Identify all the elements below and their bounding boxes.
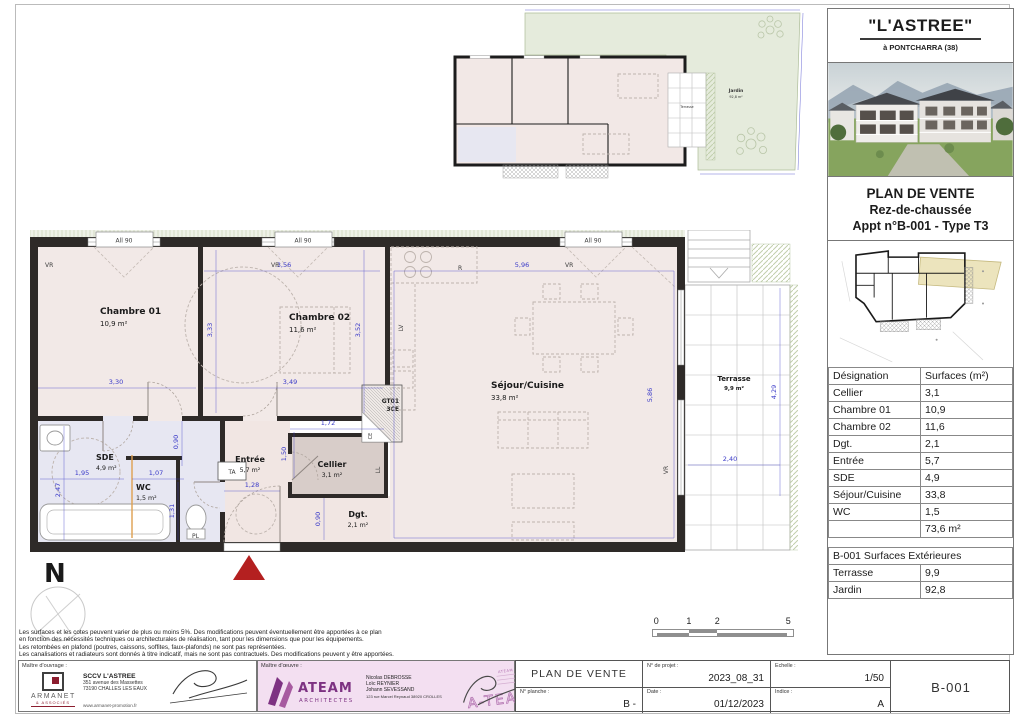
scale-value: 1/50 — [865, 673, 884, 684]
room-area: 5,7 m² — [240, 467, 261, 474]
dimension-label: 2,40 — [723, 455, 737, 463]
overview-terrasse-label: Terrasse — [679, 105, 693, 109]
cell-surface: 3,1 — [921, 385, 1013, 402]
client-company: SCCV L'ASTREE — [83, 673, 173, 680]
disclaimer-line: Les retombées en plafond (poutres, caiss… — [19, 644, 819, 651]
client-label: Maître d'ouvrage : — [22, 663, 67, 669]
footer-plan-title: PLAN DE VENTE — [516, 668, 642, 680]
cell-designation: Chambre 02 — [829, 419, 921, 436]
armanet-logo-subtext: & ASSOCIÉS — [31, 700, 75, 707]
project-number-value: 2023_08_31 — [708, 673, 764, 684]
scale-tick: 2 — [715, 616, 720, 626]
room-name: WC — [136, 483, 151, 492]
plan-floor: Rez-de-chaussée — [828, 203, 1013, 217]
date-cell: Date : 01/12/2023 — [643, 687, 770, 713]
cell-designation: Cellier — [829, 385, 921, 402]
shutter-label: VR — [45, 262, 53, 269]
table-row: Entrée5,7 — [829, 453, 1013, 470]
dimension-label: 1,31 — [168, 504, 176, 518]
exterior-table-title: B-001 Surfaces Extérieures — [829, 548, 1013, 565]
overview-plan: Terrasse Jardin 92,8 m² — [448, 4, 820, 180]
table-row: WC1,5 — [829, 504, 1013, 521]
dimension-label: 1,50 — [280, 447, 288, 461]
dimension-label: 0,90 — [172, 435, 180, 449]
plan-title-cell: PLAN DE VENTE — [516, 661, 642, 687]
col-surface: Surfaces (m²) — [921, 368, 1013, 385]
room-name: Entrée — [235, 454, 265, 464]
table-row: Cellier3,1 — [829, 385, 1013, 402]
svg-text:ARCHITECTES: ARCHITECTES — [299, 698, 354, 704]
architect-box: Maître d'œuvre : ATEAM ARCHITECTES Nicol… — [257, 660, 515, 712]
overview-jardin-area: 92,8 m² — [729, 95, 743, 99]
shutter-label: VR — [565, 262, 573, 269]
sheet-value: B - — [623, 699, 636, 710]
cell-designation: Entrée — [829, 453, 921, 470]
armanet-logo-text: ARMANET — [31, 693, 75, 700]
overview-jardin-label: Jardin — [728, 88, 744, 94]
total-surface: 73,6 m² — [921, 521, 1013, 538]
table-row: Chambre 0211,6 — [829, 419, 1013, 436]
cell-empty — [829, 521, 921, 538]
table-row: Terrasse9,9 — [829, 565, 1013, 582]
room-area: 2,1 m² — [348, 522, 369, 529]
info-panel: "L'ASTREE" à PONTCHARRA (38) — [827, 8, 1014, 655]
index-label: Indice : — [775, 689, 792, 695]
surfaces-table: Désignation Surfaces (m²) Cellier3,1 Cha… — [828, 367, 1013, 538]
date-value: 01/12/2023 — [714, 699, 764, 710]
client-address-2: 73190 CHALLES LES EAUX — [83, 686, 173, 692]
terrasse-area — [685, 285, 798, 550]
col-designation: Désignation — [829, 368, 921, 385]
cell-designation: Dgt. — [829, 436, 921, 453]
duct-label-2: 3CE — [386, 406, 399, 413]
entrance-marker-icon — [233, 555, 265, 580]
table-header-row: Désignation Surfaces (m²) — [829, 368, 1013, 385]
architect-label: Maître d'œuvre : — [261, 663, 302, 669]
table-total-row: 73,6 m² — [829, 521, 1013, 538]
north-label: N — [44, 559, 66, 589]
dimension-label: 5,86 — [646, 388, 654, 402]
cell-designation: Séjour/Cuisine — [829, 487, 921, 504]
locator-map — [828, 241, 1013, 367]
room-name: Chambre 01 — [100, 307, 161, 317]
closet-label: PL — [192, 533, 200, 540]
scale-tick: 1 — [686, 616, 691, 626]
fridge-label: R — [458, 265, 462, 272]
cell-surface: 9,9 — [921, 565, 1013, 582]
architect-identity: Nicolas DEBROSSE Loïc REYNIER Johann SEV… — [366, 675, 456, 700]
panel-label: TA — [227, 469, 236, 476]
exterior-surfaces-table: B-001 Surfaces Extérieures Terrasse9,9 J… — [828, 547, 1013, 599]
cell-surface: 10,9 — [921, 402, 1013, 419]
room-area: 33,8 m² — [491, 394, 519, 402]
room-area: 4,9 m² — [96, 465, 117, 472]
window-label: All 90 — [585, 238, 602, 245]
index-value: A — [877, 699, 884, 710]
cell-designation: SDE — [829, 470, 921, 487]
cell-designation: Terrasse — [829, 565, 921, 582]
disclaimer-line: Les canalisations et radiateurs sont don… — [19, 651, 819, 658]
cell-surface: 5,7 — [921, 453, 1013, 470]
architect-address: 123 rue Marcel Reynaud 38920 CROLLES — [366, 694, 456, 700]
index-cell: Indice : A — [771, 687, 890, 713]
main-floor-plan: GT01 3CE — [28, 230, 798, 585]
dimension-label: 1,07 — [149, 469, 163, 477]
cell-surface: 11,6 — [921, 419, 1013, 436]
sheet-label: N° planche : — [520, 689, 549, 695]
room-name: SDE — [96, 453, 114, 462]
client-box: Maître d'ouvrage : ARMANET & ASSOCIÉS SC… — [18, 660, 257, 712]
titleblock-grid: PLAN DE VENTE N° planche : B - N° de pro… — [515, 660, 1010, 712]
shutter-label: VR — [271, 262, 279, 269]
exterior-table-title-row: B-001 Surfaces Extérieures — [829, 548, 1013, 565]
building-photo — [828, 63, 1013, 177]
cell-surface: 92,8 — [921, 582, 1013, 599]
window-label: All 90 — [295, 238, 312, 245]
table-row: Séjour/Cuisine33,8 — [829, 487, 1013, 504]
apartment-code: B-001 — [931, 680, 971, 695]
shutter-label: VR — [663, 466, 670, 474]
plan-type: PLAN DE VENTE — [828, 186, 1013, 201]
svg-text:ATEAM: ATEAM — [298, 681, 353, 696]
table-row: Dgt.2,1 — [829, 436, 1013, 453]
armanet-logo-icon: ARMANET & ASSOCIÉS — [31, 672, 75, 707]
scale-cell: Echelle : 1/50 — [771, 661, 890, 687]
cell-surface: 33,8 — [921, 487, 1013, 504]
project-location: à PONTCHARRA (38) — [828, 43, 1013, 52]
scale-bar: 0 1 2 5 — [652, 616, 794, 640]
cell-surface: 2,1 — [921, 436, 1013, 453]
dimension-label: 0,90 — [314, 512, 322, 526]
dimension-label: 5,96 — [515, 261, 529, 269]
plan-apartment: Appt n°B-001 - Type T3 — [828, 219, 1013, 233]
room-name: Dgt. — [348, 510, 367, 519]
window-label: All 90 — [116, 238, 133, 245]
dishwasher-label: LV — [398, 324, 405, 332]
client-signature — [167, 664, 253, 708]
project-number-label: N° de projet : — [647, 663, 679, 669]
room-area: 11,6 m² — [289, 326, 317, 334]
dimension-label: 3,52 — [354, 323, 362, 337]
room-name: Terrasse — [717, 375, 751, 383]
cell-designation: Chambre 01 — [829, 402, 921, 419]
cell-surface: 1,5 — [921, 504, 1013, 521]
dimension-label: 1,28 — [245, 481, 259, 489]
project-name: "L'ASTREE" — [860, 16, 981, 40]
apartment-code-cell: B-001 — [891, 661, 1011, 713]
sheet-number-cell: N° planche : B - — [516, 687, 642, 713]
table-row: Chambre 0110,9 — [829, 402, 1013, 419]
scale-bar-graphic — [652, 629, 794, 637]
plan-sheet: Terrasse Jardin 92,8 m² — [0, 0, 1024, 720]
room-area: 9,9 m² — [724, 385, 744, 392]
dimension-label: 1,95 — [75, 469, 89, 477]
dimension-label: 3,49 — [283, 378, 297, 386]
dimension-label: 1,72 — [321, 419, 335, 427]
stairs — [688, 230, 750, 282]
room-area: 10,9 m² — [100, 320, 128, 328]
ateam-logo-icon: ATEAM ARCHITECTES — [266, 674, 362, 710]
cell-designation: WC — [829, 504, 921, 521]
room-name: Chambre 02 — [289, 313, 350, 323]
project-title-block: "L'ASTREE" à PONTCHARRA (38) — [828, 9, 1013, 63]
plan-type-block: PLAN DE VENTE Rez-de-chaussée Appt n°B-0… — [828, 177, 1013, 241]
heater-label: CE — [368, 433, 374, 440]
scale-label: Echelle : — [775, 663, 796, 669]
room-name: Cellier — [318, 460, 347, 469]
dimension-label: 4,29 — [770, 385, 778, 399]
table-row: Jardin92,8 — [829, 582, 1013, 599]
dimension-label: 3,30 — [109, 378, 123, 386]
table-row: SDE4,9 — [829, 470, 1013, 487]
project-number-cell: N° de projet : 2023_08_31 — [643, 661, 770, 687]
washer-label: LL — [375, 466, 382, 473]
room-name: Séjour/Cuisine — [491, 380, 564, 391]
cell-designation: Jardin — [829, 582, 921, 599]
client-identity: SCCV L'ASTREE 351 avenue des Massettes 7… — [83, 673, 173, 708]
dimension-label: 2,47 — [54, 483, 62, 497]
room-area: 1,5 m² — [136, 495, 157, 502]
duct-label: GT01 — [382, 398, 399, 405]
room-area: 3,1 m² — [322, 472, 343, 479]
cell-surface: 4,9 — [921, 470, 1013, 487]
dimension-label: 3,33 — [206, 323, 214, 337]
scale-tick: 5 — [786, 616, 791, 626]
scale-tick: 0 — [654, 616, 659, 626]
client-website: www.armanet-promotion.fr — [83, 703, 173, 708]
date-label: Date : — [647, 689, 661, 695]
